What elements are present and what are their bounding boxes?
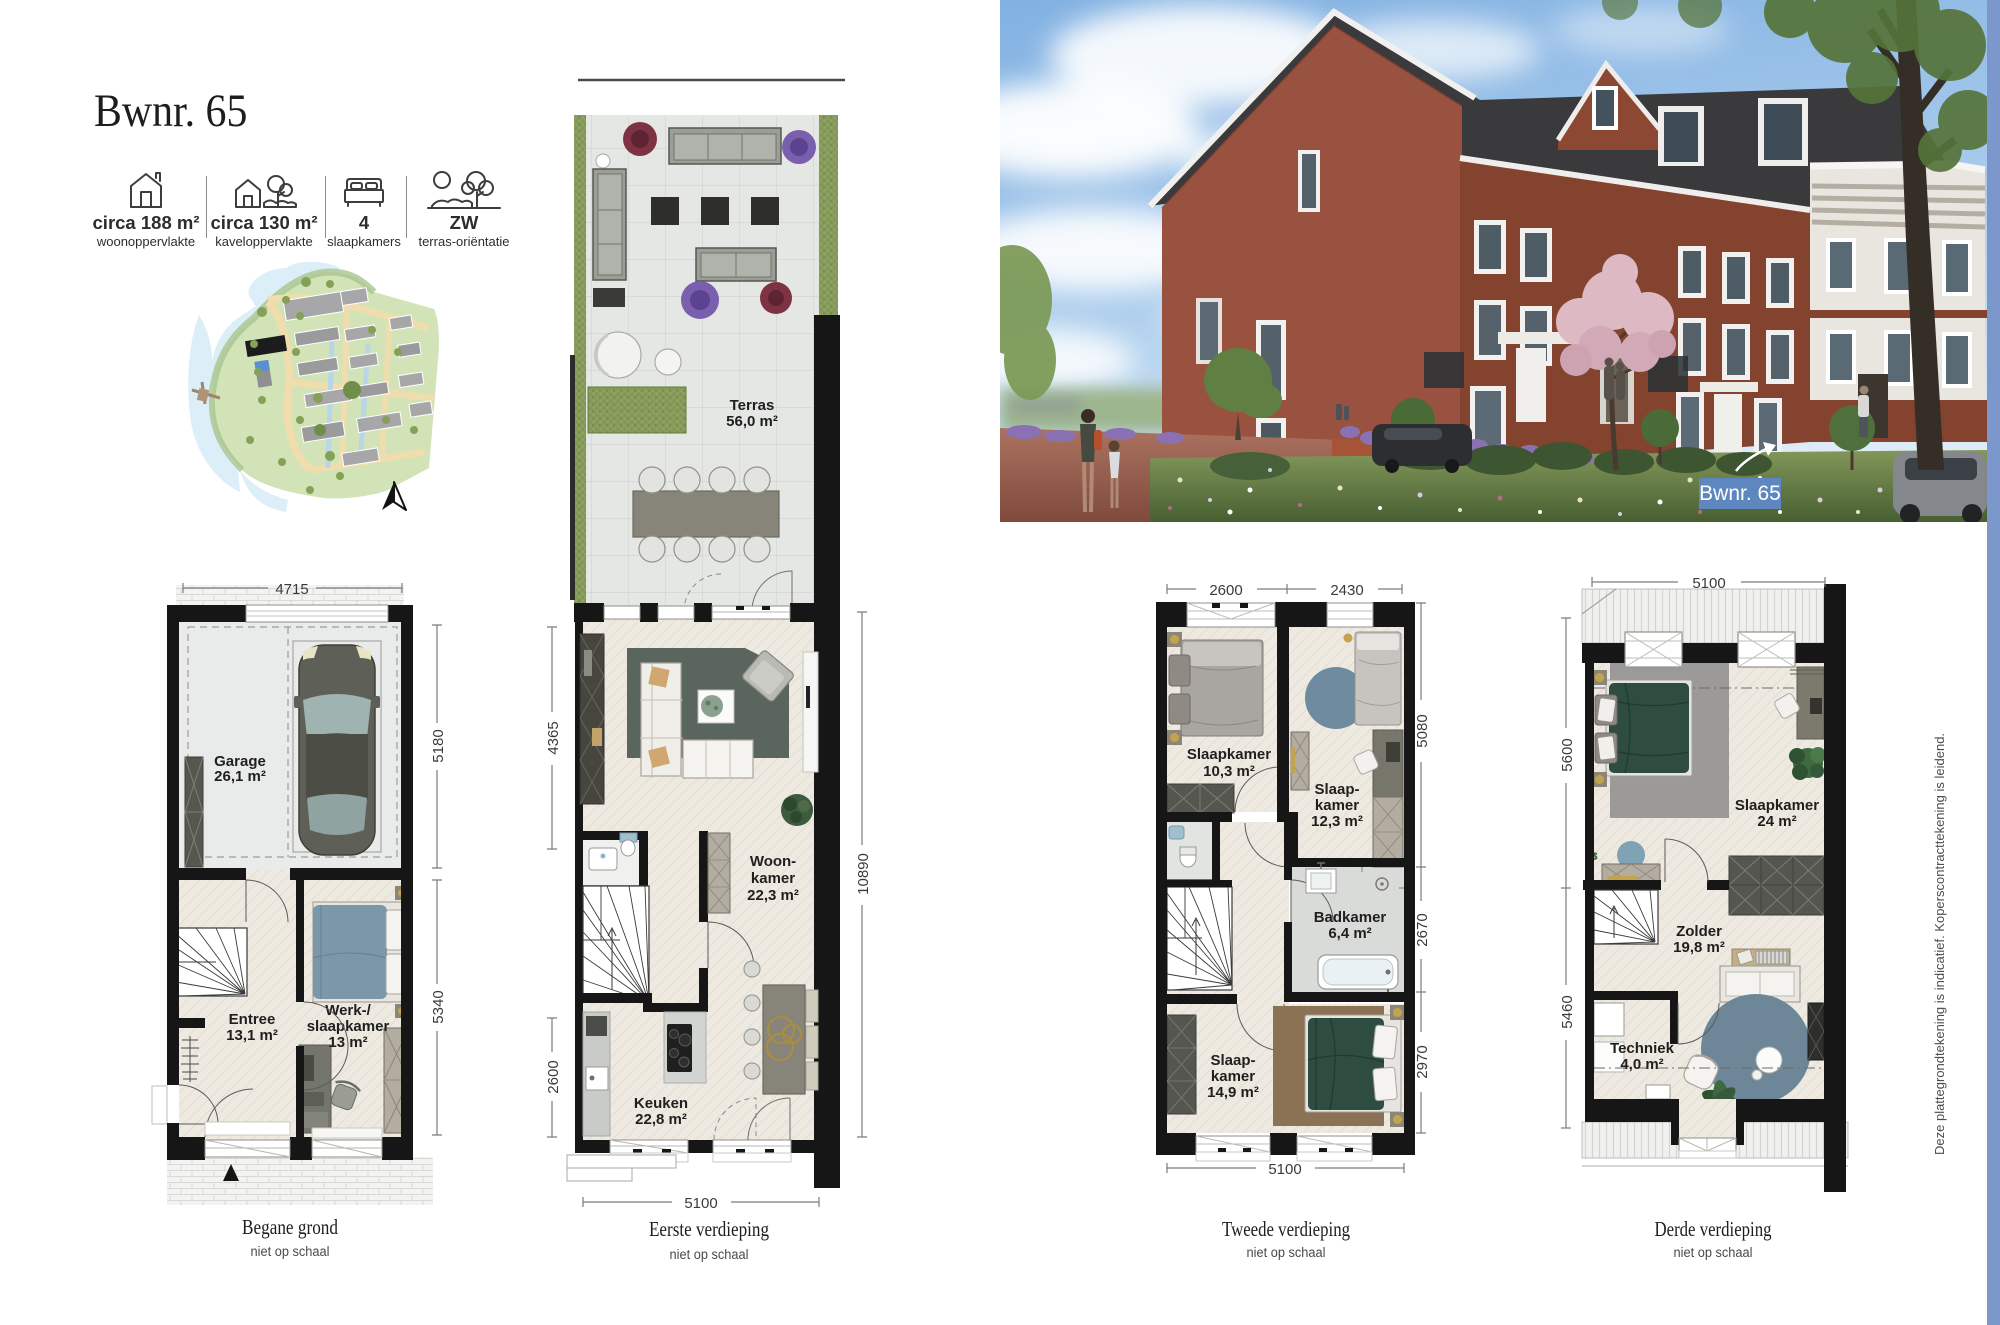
- svg-text:Begane grond: Begane grond: [242, 1215, 338, 1239]
- svg-text:5180: 5180: [430, 729, 447, 762]
- svg-text:kamer: kamer: [1211, 1068, 1255, 1085]
- svg-text:5100: 5100: [684, 1195, 717, 1212]
- svg-text:22,3 m²: 22,3 m²: [747, 887, 799, 904]
- svg-text:niet op schaal: niet op schaal: [670, 1247, 749, 1262]
- svg-text:22,8 m²: 22,8 m²: [635, 1111, 687, 1128]
- svg-text:Werk-/: Werk-/: [325, 1002, 371, 1019]
- svg-text:Terras: Terras: [730, 397, 775, 414]
- svg-text:niet op schaal: niet op schaal: [1247, 1245, 1326, 1260]
- svg-text:niet op schaal: niet op schaal: [251, 1244, 330, 1259]
- svg-text:4,0 m²: 4,0 m²: [1620, 1056, 1663, 1073]
- svg-text:5100: 5100: [1692, 575, 1725, 592]
- svg-text:2600: 2600: [1209, 582, 1242, 599]
- svg-text:Badkamer: Badkamer: [1314, 909, 1387, 926]
- svg-text:Slaap-: Slaap-: [1210, 1052, 1255, 1069]
- svg-text:5100: 5100: [1268, 1161, 1301, 1178]
- svg-text:Slaapkamer: Slaapkamer: [1187, 746, 1271, 763]
- svg-text:5080: 5080: [1414, 714, 1431, 747]
- svg-text:56,0 m²: 56,0 m²: [726, 413, 778, 430]
- svg-text:Woon-: Woon-: [750, 853, 796, 870]
- svg-text:Slaap-: Slaap-: [1314, 781, 1359, 798]
- svg-text:14,9 m²: 14,9 m²: [1207, 1084, 1259, 1101]
- svg-text:Derde verdieping: Derde verdieping: [1655, 1217, 1772, 1241]
- svg-text:niet op schaal: niet op schaal: [1674, 1245, 1753, 1260]
- svg-text:12,3 m²: 12,3 m²: [1311, 813, 1363, 830]
- svg-text:19,8 m²: 19,8 m²: [1673, 939, 1725, 956]
- svg-text:2430: 2430: [1330, 582, 1363, 599]
- svg-text:4365: 4365: [545, 721, 562, 754]
- svg-text:6,4 m²: 6,4 m²: [1328, 925, 1371, 942]
- svg-text:2970: 2970: [1414, 1045, 1431, 1078]
- svg-text:2600: 2600: [545, 1060, 562, 1093]
- svg-text:Keuken: Keuken: [634, 1095, 688, 1112]
- svg-text:13,1 m²: 13,1 m²: [226, 1027, 278, 1044]
- svg-text:slaapkamer: slaapkamer: [307, 1018, 390, 1035]
- svg-text:Bwnr. 65: Bwnr. 65: [1699, 482, 1781, 505]
- svg-text:kamer: kamer: [1315, 797, 1359, 814]
- svg-text:5600: 5600: [1559, 738, 1576, 771]
- svg-text:26,1 m²: 26,1 m²: [214, 768, 266, 785]
- svg-text:24 m²: 24 m²: [1757, 813, 1796, 830]
- svg-text:Slaapkamer: Slaapkamer: [1735, 797, 1819, 814]
- svg-text:Entree: Entree: [229, 1011, 276, 1028]
- svg-text:5340: 5340: [430, 990, 447, 1023]
- svg-text:4715: 4715: [275, 581, 308, 598]
- svg-text:10890: 10890: [855, 853, 872, 895]
- svg-text:10,3 m²: 10,3 m²: [1203, 763, 1255, 780]
- svg-text:kamer: kamer: [751, 870, 795, 887]
- svg-text:Techniek: Techniek: [1610, 1040, 1675, 1057]
- svg-text:5460: 5460: [1559, 995, 1576, 1028]
- svg-text:Eerste verdieping: Eerste verdieping: [649, 1217, 769, 1241]
- svg-text:Zolder: Zolder: [1676, 923, 1722, 940]
- svg-text:Tweede verdieping: Tweede verdieping: [1222, 1217, 1350, 1241]
- svg-text:2670: 2670: [1414, 913, 1431, 946]
